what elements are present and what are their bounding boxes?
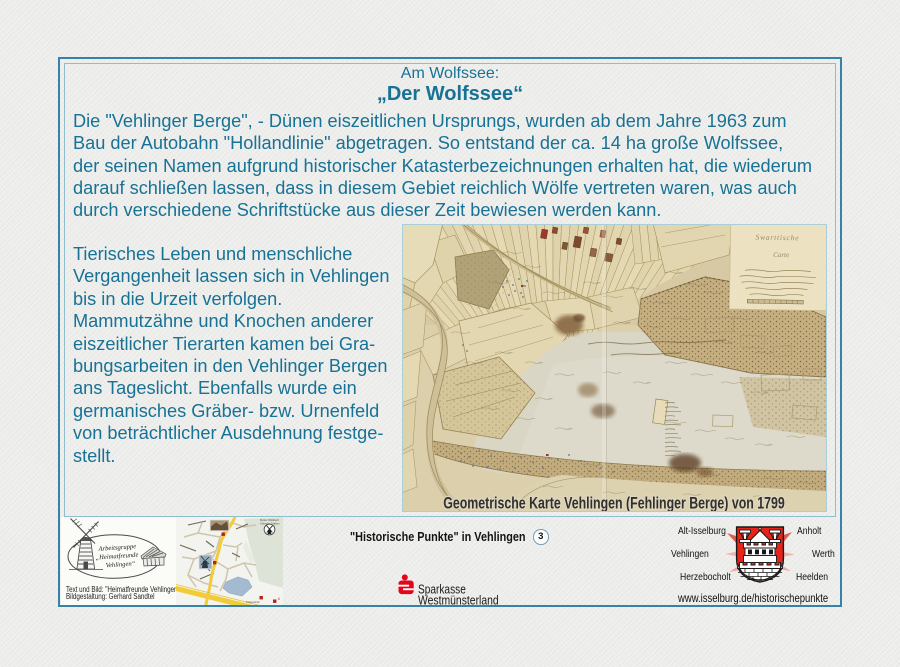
svg-text:6: 6: [278, 597, 280, 601]
svg-text:Gölische Gräben: Gölische Gräben: [260, 521, 280, 525]
svg-text:Berker Wildbach: Berker Wildbach: [260, 518, 280, 522]
svg-text:Vehlingen“: Vehlingen“: [106, 560, 136, 569]
svg-text:Westmünsterland: Westmünsterland: [418, 593, 499, 607]
svg-text:Swarttische: Swarttische: [755, 233, 799, 243]
svg-text:Geometrische Karte Vehlingen (: Geometrische Karte Vehlingen (Fehlinger …: [443, 495, 785, 511]
svg-text:Carte: Carte: [773, 251, 789, 259]
svg-text:Pelsendonk: Pelsendonk: [246, 600, 260, 604]
